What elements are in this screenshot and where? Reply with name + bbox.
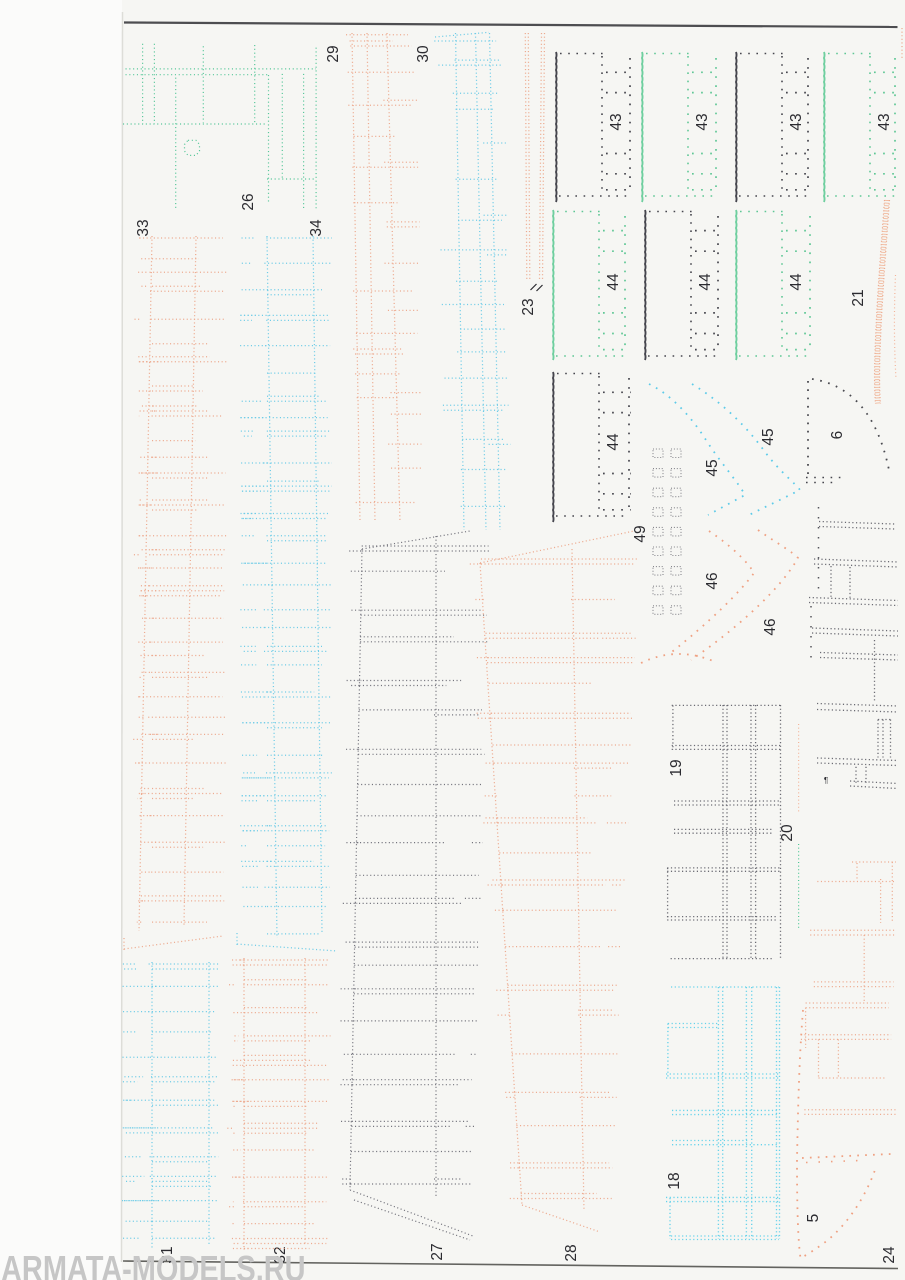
svg-text:5: 5 bbox=[805, 1214, 822, 1223]
svg-text:24: 24 bbox=[881, 1246, 898, 1264]
svg-text:44: 44 bbox=[697, 273, 714, 291]
svg-text:43: 43 bbox=[608, 113, 625, 130]
svg-text:19: 19 bbox=[668, 759, 685, 776]
svg-text:45: 45 bbox=[704, 459, 721, 476]
svg-text:45: 45 bbox=[760, 428, 777, 445]
svg-text:33: 33 bbox=[135, 219, 152, 236]
svg-text:20: 20 bbox=[779, 824, 796, 842]
svg-text:28: 28 bbox=[563, 1244, 580, 1261]
svg-text:44: 44 bbox=[605, 433, 622, 451]
svg-text:43: 43 bbox=[694, 113, 711, 130]
svg-text:29: 29 bbox=[325, 45, 342, 62]
svg-text:26: 26 bbox=[240, 193, 257, 210]
svg-text:44: 44 bbox=[605, 273, 622, 291]
svg-text:21: 21 bbox=[850, 289, 867, 306]
svg-text:46: 46 bbox=[762, 618, 779, 635]
svg-text:44: 44 bbox=[788, 273, 805, 291]
svg-text:ARMATA-MODELS.RU: ARMATA-MODELS.RU bbox=[1, 1248, 306, 1280]
svg-text:30: 30 bbox=[415, 45, 432, 63]
svg-text:18: 18 bbox=[666, 1172, 683, 1189]
svg-text:6: 6 bbox=[829, 431, 846, 440]
svg-text:49: 49 bbox=[632, 525, 649, 542]
svg-text:46: 46 bbox=[704, 572, 721, 589]
svg-text:43: 43 bbox=[788, 113, 805, 130]
svg-text:¶: ¶ bbox=[824, 776, 828, 785]
svg-text:34: 34 bbox=[308, 219, 325, 237]
svg-text:43: 43 bbox=[876, 113, 893, 130]
svg-text:23: 23 bbox=[520, 298, 537, 315]
svg-text:27: 27 bbox=[429, 1243, 446, 1260]
